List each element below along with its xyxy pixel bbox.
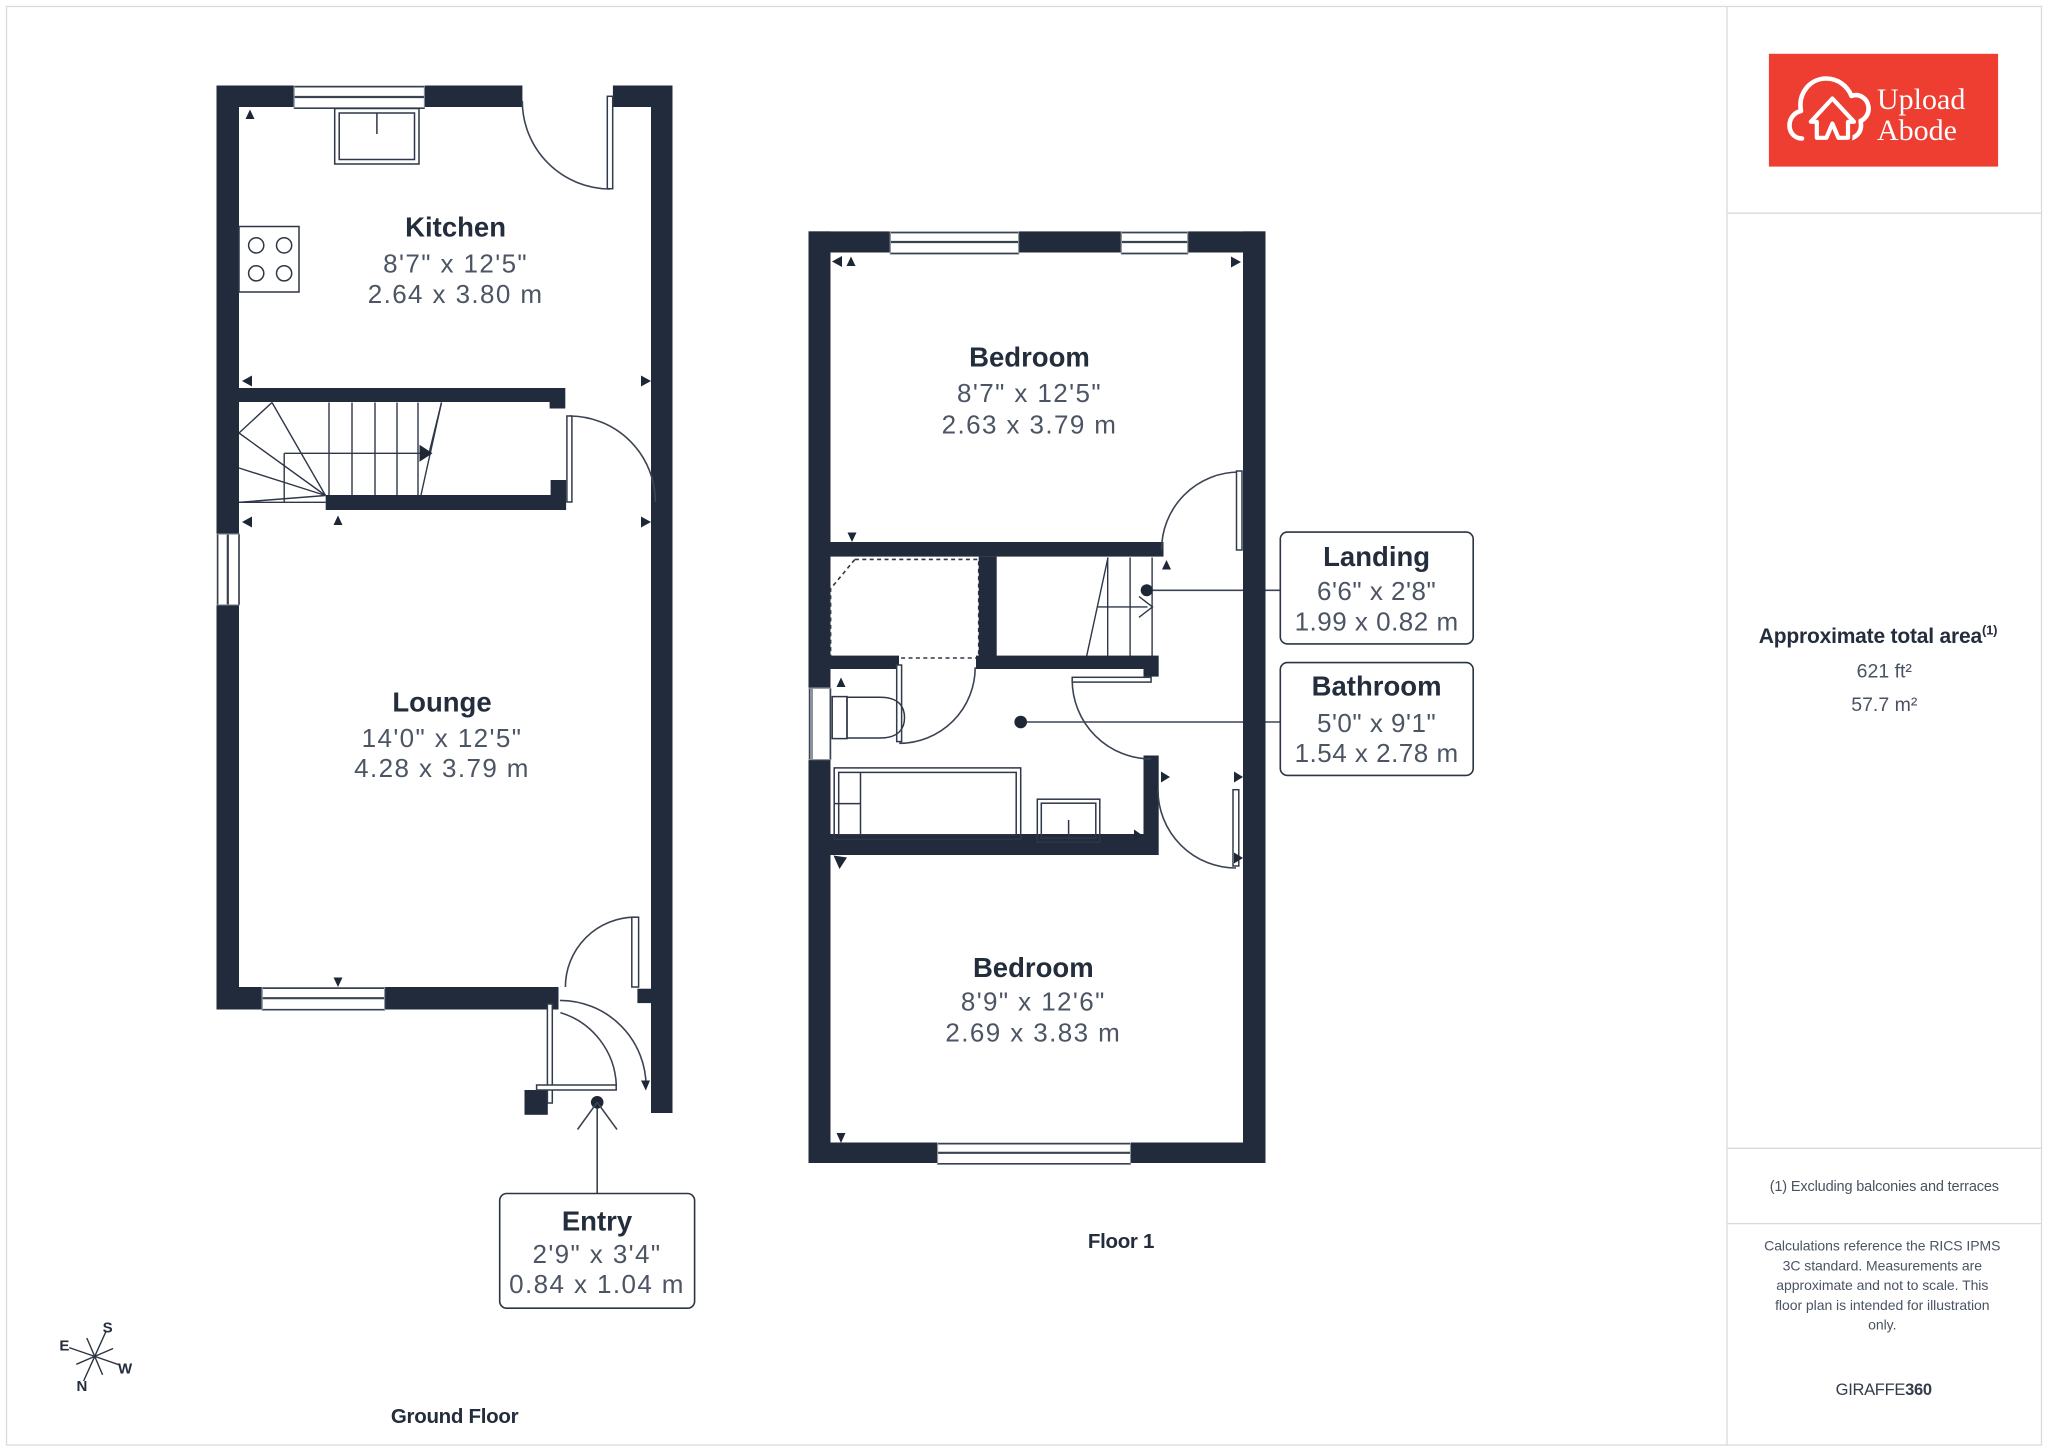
svg-text:Bedroom: Bedroom	[973, 952, 1094, 983]
svg-text:Entry: Entry	[562, 1206, 633, 1237]
svg-text:Lounge: Lounge	[392, 687, 491, 718]
svg-text:2.63 x 3.79 m: 2.63 x 3.79 m	[942, 409, 1118, 439]
svg-text:2.69 x 3.83 m: 2.69 x 3.83 m	[945, 1017, 1121, 1047]
svg-text:Bathroom: Bathroom	[1312, 671, 1442, 702]
svg-text:Kitchen: Kitchen	[405, 212, 506, 243]
svg-text:Calculations reference the RIC: Calculations reference the RICS IPMS	[1764, 1238, 2000, 1254]
svg-text:5'0" x 9'1": 5'0" x 9'1"	[1317, 708, 1436, 738]
svg-text:approximate and not to scale.: approximate and not to scale. This	[1776, 1277, 1988, 1293]
svg-text:14'0" x 12'5": 14'0" x 12'5"	[362, 723, 523, 753]
svg-text:floor plan is intended for ill: floor plan is intended for illustration	[1775, 1297, 1989, 1313]
svg-text:621 ft²: 621 ft²	[1857, 661, 1913, 683]
svg-text:8'7" x 12'5": 8'7" x 12'5"	[383, 249, 528, 279]
svg-text:S: S	[103, 1319, 113, 1336]
svg-text:Abode: Abode	[1877, 114, 1957, 147]
svg-text:only.: only.	[1868, 1317, 1896, 1333]
svg-text:2.64 x 3.80 m: 2.64 x 3.80 m	[368, 279, 544, 309]
svg-text:Landing: Landing	[1323, 541, 1430, 572]
svg-text:3C standard. Measurements are: 3C standard. Measurements are	[1783, 1257, 1983, 1273]
svg-text:Floor 1: Floor 1	[1088, 1230, 1154, 1253]
svg-text:8'9" x 12'6": 8'9" x 12'6"	[961, 986, 1106, 1016]
svg-text:Upload: Upload	[1877, 83, 1965, 116]
svg-text:(1) Excluding balconies and te: (1) Excluding balconies and terraces	[1770, 1179, 1999, 1195]
svg-text:W: W	[118, 1361, 133, 1378]
svg-text:Bedroom: Bedroom	[969, 342, 1090, 373]
svg-text:1.54 x 2.78 m: 1.54 x 2.78 m	[1295, 738, 1459, 768]
svg-text:Ground Floor: Ground Floor	[391, 1405, 519, 1428]
svg-text:N: N	[76, 1378, 87, 1395]
svg-text:0.84 x 1.04 m: 0.84 x 1.04 m	[509, 1269, 685, 1299]
svg-text:8'7" x 12'5": 8'7" x 12'5"	[957, 378, 1102, 408]
svg-text:57.7 m²: 57.7 m²	[1851, 694, 1918, 716]
svg-text:4.28 x 3.79 m: 4.28 x 3.79 m	[354, 753, 530, 783]
svg-text:6'6" x 2'8": 6'6" x 2'8"	[1317, 576, 1436, 606]
svg-text:GIRAFFE360: GIRAFFE360	[1836, 1381, 1932, 1399]
svg-text:E: E	[59, 1337, 69, 1354]
svg-text:Approximate total area(1): Approximate total area(1)	[1759, 622, 1997, 648]
svg-text:2'9" x 3'4": 2'9" x 3'4"	[532, 1239, 661, 1269]
svg-text:1.99 x 0.82 m: 1.99 x 0.82 m	[1295, 607, 1459, 637]
